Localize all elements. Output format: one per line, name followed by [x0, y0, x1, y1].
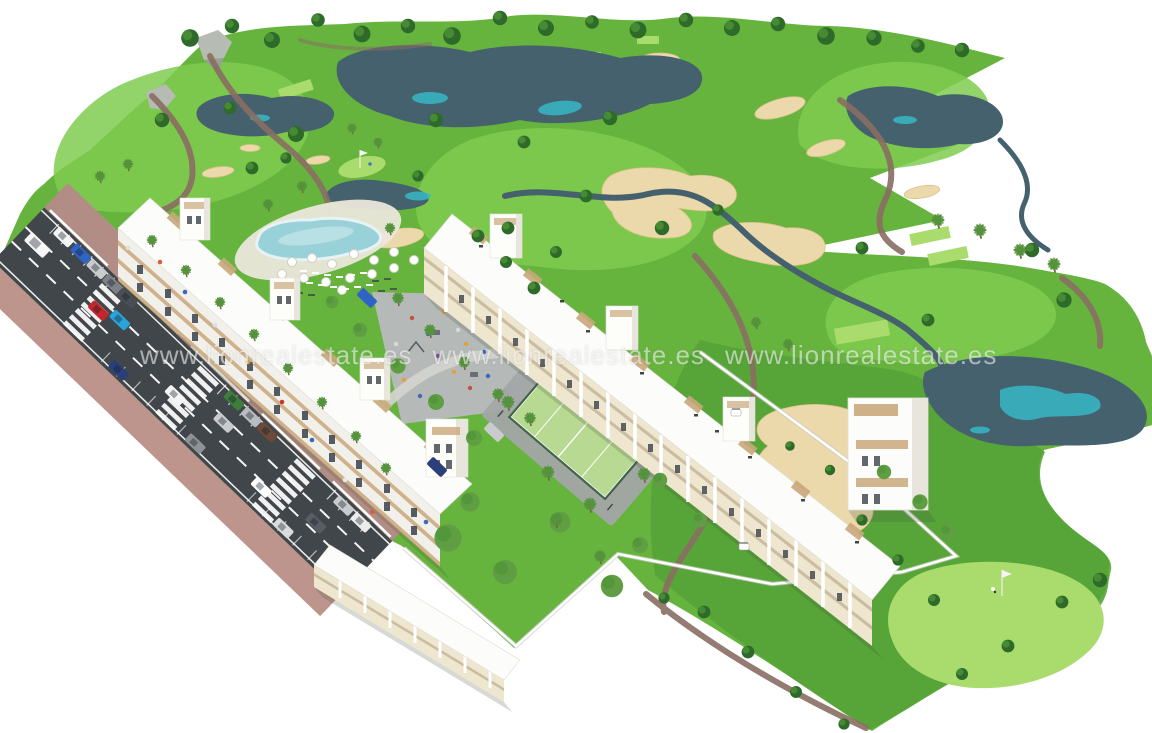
tower: [490, 214, 522, 258]
golf-cart: [731, 409, 741, 416]
tee-box: [909, 226, 951, 246]
tower: [606, 306, 638, 350]
stream: [1000, 140, 1048, 250]
tower: [180, 198, 210, 240]
golfer: [368, 162, 372, 166]
terrace: [856, 440, 908, 449]
golfer: [991, 587, 995, 591]
tower: [723, 397, 755, 441]
tower: [360, 358, 390, 400]
tower: [270, 278, 300, 320]
roof-pergola: [854, 404, 898, 416]
aerial-render: www.lionrealestate.es www.lionrealestate…: [0, 0, 1152, 733]
golf-cart: [739, 543, 749, 550]
scene-svg: [0, 0, 1152, 733]
apartment-tower-d: [848, 398, 928, 510]
terrace: [856, 478, 908, 487]
putting-green: [888, 562, 1104, 688]
